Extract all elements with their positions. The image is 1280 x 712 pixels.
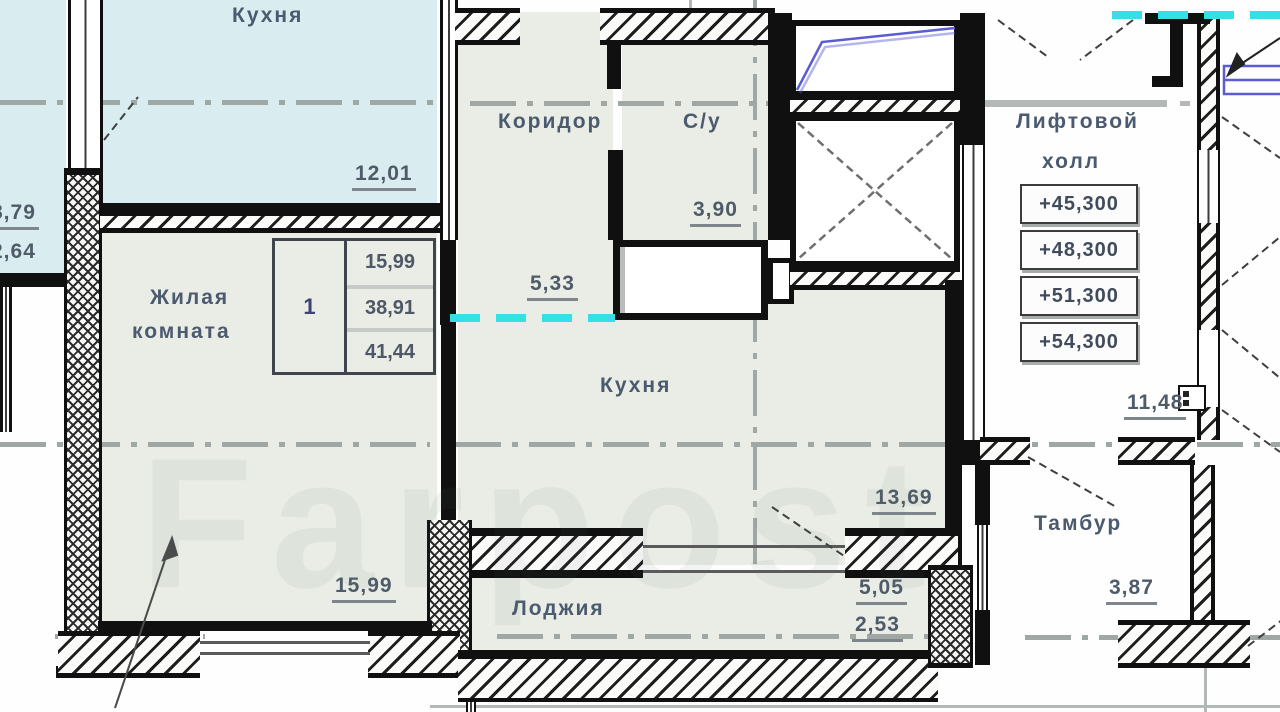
ventilation-shaft xyxy=(613,240,768,320)
wall xyxy=(1152,76,1183,87)
hatched-wall xyxy=(980,437,1030,465)
room-label-corridor: Коридор xyxy=(498,110,602,134)
baseline xyxy=(430,705,1280,708)
elevation-mark: +54,300 xyxy=(1020,322,1138,362)
apartment-number: 1 xyxy=(275,241,347,372)
room-fill-side-room xyxy=(0,0,66,275)
room-area-living: 15,99 xyxy=(332,574,396,603)
window-wall xyxy=(962,145,985,440)
total-area-value: 41,44 xyxy=(347,328,433,372)
axis-line xyxy=(470,101,775,106)
hatched-wall xyxy=(455,8,520,45)
wall xyxy=(1170,24,1183,76)
window-wall xyxy=(0,287,12,432)
wall xyxy=(100,203,440,211)
room-label-loggia: Лоджия xyxy=(512,597,605,621)
elevation-mark: +45,300 xyxy=(1020,184,1138,224)
wall xyxy=(441,325,456,528)
wall xyxy=(440,240,456,325)
insulated-wall xyxy=(928,565,973,668)
floor-plan: 1 15,99 38,91 41,44 Кухня 12,01 8,79 2,6… xyxy=(0,0,1280,712)
room-label-living-line2: комната xyxy=(132,320,231,344)
axis-line xyxy=(0,100,437,105)
hatched-wall xyxy=(450,528,643,578)
window-sill-line xyxy=(643,570,845,573)
hatched-wall xyxy=(368,631,460,678)
window-sill-line xyxy=(643,545,845,548)
apartment-boundary-dash xyxy=(450,314,615,322)
stair-run-icon xyxy=(1224,66,1280,94)
room-area-bathroom: 3,90 xyxy=(690,198,741,227)
room-label-tambour: Тамбур xyxy=(1034,512,1122,536)
room-area-tambour: 3,87 xyxy=(1106,576,1157,605)
wall xyxy=(945,280,962,565)
room-label-living-line1: Жилая xyxy=(150,286,229,310)
hatched-wall xyxy=(458,650,938,702)
hatched-wall xyxy=(1118,437,1195,465)
hatched-wall xyxy=(790,97,960,115)
elevator-shaft xyxy=(790,115,960,267)
window-sill-line xyxy=(200,652,370,655)
room-area-kitchen-main: 13,69 xyxy=(872,486,936,515)
hatched-wall xyxy=(100,211,440,233)
stair-flight-box xyxy=(790,20,960,97)
room-fill-kitchen-main-east xyxy=(768,288,945,565)
wall xyxy=(608,150,623,240)
hatched-wall xyxy=(58,631,200,678)
axis-line xyxy=(455,442,945,447)
hatched-wall xyxy=(1190,465,1215,625)
room-label-lift-hall-line2: холл xyxy=(1042,150,1100,174)
hatched-wall xyxy=(600,8,775,45)
window-wall xyxy=(1197,150,1220,223)
living-area-value: 15,99 xyxy=(347,241,433,285)
hatched-wall xyxy=(1118,620,1250,668)
wall-stub xyxy=(607,45,621,89)
room-label-kitchen-top: Кухня xyxy=(232,4,303,28)
elevation-mark: +51,300 xyxy=(1020,276,1138,316)
wall xyxy=(98,621,432,631)
room-label-kitchen-main: Кухня xyxy=(600,374,671,398)
window-sill-line xyxy=(200,641,370,644)
elevation-mark: +48,300 xyxy=(1020,230,1138,270)
room-area-lift-hall: 11,48 xyxy=(1124,391,1186,420)
window-wall xyxy=(977,525,988,610)
room-label-lift-hall-line1: Лифтовой xyxy=(1016,110,1139,134)
loggia-area-total: 5,05 xyxy=(856,576,907,605)
apartment-info-table: 1 15,99 38,91 41,44 xyxy=(272,238,436,375)
wall xyxy=(0,273,68,287)
loggia-area-reduced: 2,53 xyxy=(852,613,903,642)
side-room-dim-a: 8,79 xyxy=(0,201,39,230)
wall xyxy=(960,13,985,145)
side-room-dim-b: 2,64 xyxy=(0,240,39,266)
stair-direction-arrow xyxy=(1228,38,1280,75)
wall xyxy=(975,610,990,665)
insulated-wall xyxy=(64,168,102,675)
apartment-boundary-dash xyxy=(1112,11,1280,19)
axis-line-dot xyxy=(1180,101,1190,106)
hatched-wall xyxy=(790,267,960,290)
wall xyxy=(975,465,990,525)
axis-line-bar xyxy=(975,100,1167,107)
room-area-kitchen-top: 12,01 xyxy=(352,162,416,191)
room-area-corridor: 5,33 xyxy=(527,272,578,301)
area-without-loggia-value: 38,91 xyxy=(347,285,433,329)
room-label-bathroom: С/у xyxy=(683,110,722,134)
wall xyxy=(768,13,792,240)
